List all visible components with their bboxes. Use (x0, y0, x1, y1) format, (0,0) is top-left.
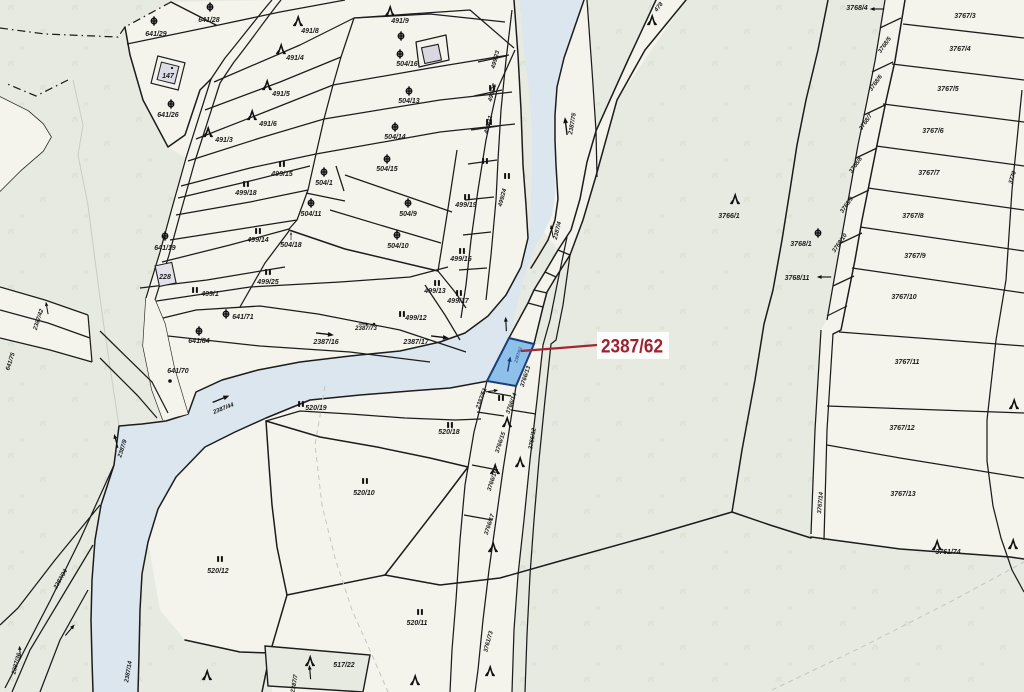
svg-text:491/3: 491/3 (214, 137, 233, 144)
svg-text:491/5: 491/5 (271, 91, 290, 98)
svg-text:499/17: 499/17 (446, 298, 470, 305)
svg-text:499/25: 499/25 (256, 279, 279, 286)
svg-text:3767/7: 3767/7 (918, 170, 941, 177)
svg-text:491/6: 491/6 (258, 121, 277, 128)
svg-text:3767/10: 3767/10 (891, 294, 916, 301)
svg-text:499/19: 499/19 (454, 202, 477, 209)
svg-text:641/84: 641/84 (188, 338, 210, 345)
svg-text:3767/4: 3767/4 (949, 46, 971, 53)
svg-text:499/12: 499/12 (404, 315, 427, 322)
svg-text:499/16: 499/16 (449, 256, 472, 263)
svg-text:504/1: 504/1 (315, 180, 333, 187)
svg-text:504/15: 504/15 (376, 166, 398, 173)
svg-text:3768/11: 3768/11 (785, 275, 810, 282)
svg-text:2387/73: 2387/73 (354, 326, 377, 332)
svg-text:504/9: 504/9 (399, 211, 417, 218)
svg-text:491/9: 491/9 (390, 18, 409, 25)
svg-text:3768/4: 3768/4 (846, 5, 868, 12)
svg-text:641/29: 641/29 (145, 31, 167, 38)
svg-text:504/11: 504/11 (301, 211, 322, 218)
svg-text:491/8: 491/8 (300, 28, 319, 35)
svg-text:641/26: 641/26 (157, 112, 179, 119)
svg-text:3767/5: 3767/5 (937, 86, 959, 93)
svg-text:499/1: 499/1 (200, 291, 219, 298)
svg-text:3767/12: 3767/12 (889, 425, 914, 432)
svg-text:3767/9: 3767/9 (904, 253, 926, 260)
svg-text:641/71: 641/71 (232, 314, 254, 321)
svg-text:520/12: 520/12 (207, 568, 229, 575)
svg-text:499/15: 499/15 (270, 171, 293, 178)
svg-text:499/14: 499/14 (246, 237, 269, 244)
svg-text:504/16: 504/16 (396, 61, 418, 68)
svg-text:504/14: 504/14 (384, 134, 406, 141)
svg-text:520/19: 520/19 (305, 405, 327, 412)
svg-text:641/19: 641/19 (154, 245, 176, 252)
svg-text:3767/8: 3767/8 (902, 213, 924, 220)
svg-text:520/11: 520/11 (407, 620, 428, 627)
svg-text:3767/13: 3767/13 (890, 491, 915, 498)
svg-text:3768/1: 3768/1 (790, 241, 812, 248)
svg-text:499/13: 499/13 (423, 288, 446, 295)
svg-text:641/28: 641/28 (198, 17, 220, 24)
svg-text:504/18: 504/18 (280, 242, 302, 249)
svg-text:491/4: 491/4 (285, 55, 304, 62)
svg-text:3766/1: 3766/1 (718, 213, 740, 220)
svg-text:517/22: 517/22 (333, 662, 355, 669)
svg-text:228: 228 (158, 274, 171, 281)
svg-text:3767/11: 3767/11 (895, 359, 920, 366)
svg-text:499/18: 499/18 (234, 190, 257, 197)
svg-text:2387/62: 2387/62 (601, 336, 663, 358)
svg-text:520/10: 520/10 (353, 490, 375, 497)
svg-text:2387/16: 2387/16 (312, 339, 338, 346)
svg-text:147: 147 (162, 73, 175, 80)
svg-text:3767/3: 3767/3 (954, 13, 976, 20)
svg-text:641/70: 641/70 (167, 368, 189, 375)
svg-text:520/18: 520/18 (438, 429, 460, 436)
svg-text:3761/74: 3761/74 (935, 549, 960, 556)
svg-text:504/10: 504/10 (387, 243, 409, 250)
svg-text:504/13: 504/13 (398, 98, 420, 105)
svg-text:2387/17: 2387/17 (402, 339, 429, 346)
svg-text:3767/6: 3767/6 (922, 128, 944, 135)
